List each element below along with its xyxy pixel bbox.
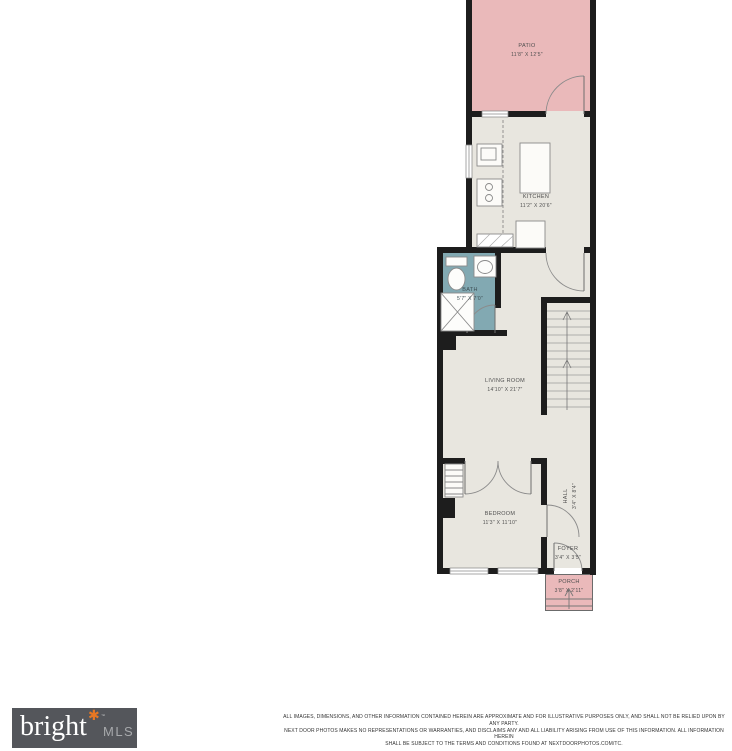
bedroom-label: BEDROOM 11'3" X 11'10" xyxy=(450,510,550,527)
kitchen-pantry xyxy=(516,221,545,248)
porch-label: PORCH 3'8" X 2'11" xyxy=(544,578,594,595)
logo-asterisk-icon: ✱ xyxy=(88,707,100,724)
foyer-name: FOYER xyxy=(543,545,593,554)
porch-name: PORCH xyxy=(544,578,594,587)
bedroom-closet xyxy=(445,464,463,497)
floor-plan: PATIO 11'8" X 12'5" KITCHEN 11'2" X 20'6… xyxy=(0,0,732,751)
kitchen-label: KITCHEN 11'2" X 20'6" xyxy=(486,193,586,210)
porch-dims: 3'8" X 2'11" xyxy=(544,587,594,595)
living-room-dims: 14'10" X 21'7" xyxy=(445,386,565,394)
hall-label: HALL 3'4" X 8'4" xyxy=(562,461,580,531)
disclaimer-text: ALL IMAGES, DIMENSIONS, AND OTHER INFORM… xyxy=(278,714,730,748)
disclaimer-line-3: SHALL BE SUBJECT TO THE TERMS AND CONDIT… xyxy=(278,741,730,748)
foyer-label: FOYER 3'4" X 3'5" xyxy=(543,545,593,562)
kitchen-fixtures xyxy=(477,120,550,248)
hall-name: HALL xyxy=(562,461,571,531)
logo-brand-text: bright xyxy=(20,711,87,743)
foyer-dims: 3'4" X 3'5" xyxy=(543,554,593,562)
bath-label: BATH 5'7" X 7'0" xyxy=(435,286,505,303)
disclaimer-line-2: NEXT DOOR PHOTOS MAKES NO REPRESENTATION… xyxy=(278,728,730,742)
bath-dims: 5'7" X 7'0" xyxy=(435,295,505,303)
bedroom-name: BEDROOM xyxy=(450,510,550,519)
hall-dims: 3'4" X 8'4" xyxy=(571,461,579,531)
bath-name: BATH xyxy=(435,286,505,295)
bedroom-dims: 11'3" X 11'10" xyxy=(450,519,550,527)
logo-trademark: ™ xyxy=(101,713,105,718)
living-room-label: LIVING ROOM 14'10" X 21'7" xyxy=(445,377,565,394)
toilet-tank xyxy=(446,257,467,266)
staircase xyxy=(547,311,590,410)
living-room-name: LIVING ROOM xyxy=(445,377,565,386)
patio-name: PATIO xyxy=(477,42,577,51)
kitchen-dims: 11'2" X 20'6" xyxy=(486,202,586,210)
bright-mls-logo: bright ✱ ™ MLS xyxy=(12,708,137,748)
kitchen-island xyxy=(520,143,550,193)
kitchen-name: KITCHEN xyxy=(486,193,586,202)
plan-linework xyxy=(0,0,732,751)
closet-shelving xyxy=(445,464,463,497)
patio-dims: 11'8" X 12'5" xyxy=(477,51,577,59)
logo-mls-text: MLS xyxy=(103,724,134,739)
patio-label: PATIO 11'8" X 12'5" xyxy=(477,42,577,59)
disclaimer-line-1: ALL IMAGES, DIMENSIONS, AND OTHER INFORM… xyxy=(278,714,730,728)
